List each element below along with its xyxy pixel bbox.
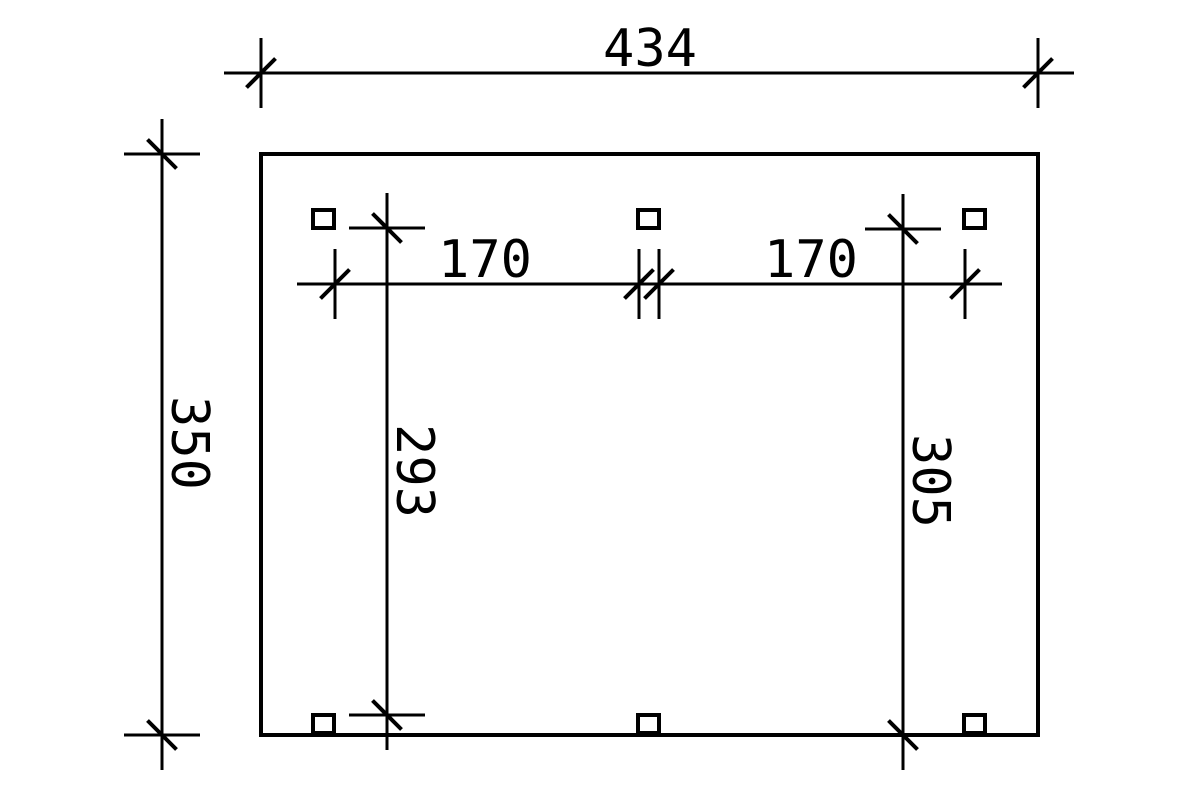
dim-bays: 170 170 [297, 230, 1002, 319]
dim-label-overall-width: 434 [603, 19, 697, 79]
post-bottom-left [313, 715, 334, 733]
dim-label-bay-left: 170 [438, 230, 532, 290]
dim-clear-height-left: 293 [349, 193, 444, 750]
dim-label-clear-height-right: 305 [900, 434, 960, 528]
dim-overall-width: 434 [224, 19, 1074, 108]
post-top-middle [638, 210, 659, 228]
post-top-left [313, 210, 334, 228]
post-bottom-right [964, 715, 985, 733]
dimension-drawing: 434 350 170 170 [0, 0, 1200, 800]
post-top-right [964, 210, 985, 228]
dim-clear-height-right: 305 [865, 194, 960, 770]
drawing-canvas: 434 350 170 170 [0, 0, 1200, 800]
dim-label-clear-height-left: 293 [384, 424, 444, 518]
post-bottom-middle [638, 715, 659, 733]
dim-label-bay-right: 170 [764, 230, 858, 290]
dim-label-overall-height: 350 [159, 396, 219, 490]
dim-overall-height: 350 [124, 119, 219, 770]
